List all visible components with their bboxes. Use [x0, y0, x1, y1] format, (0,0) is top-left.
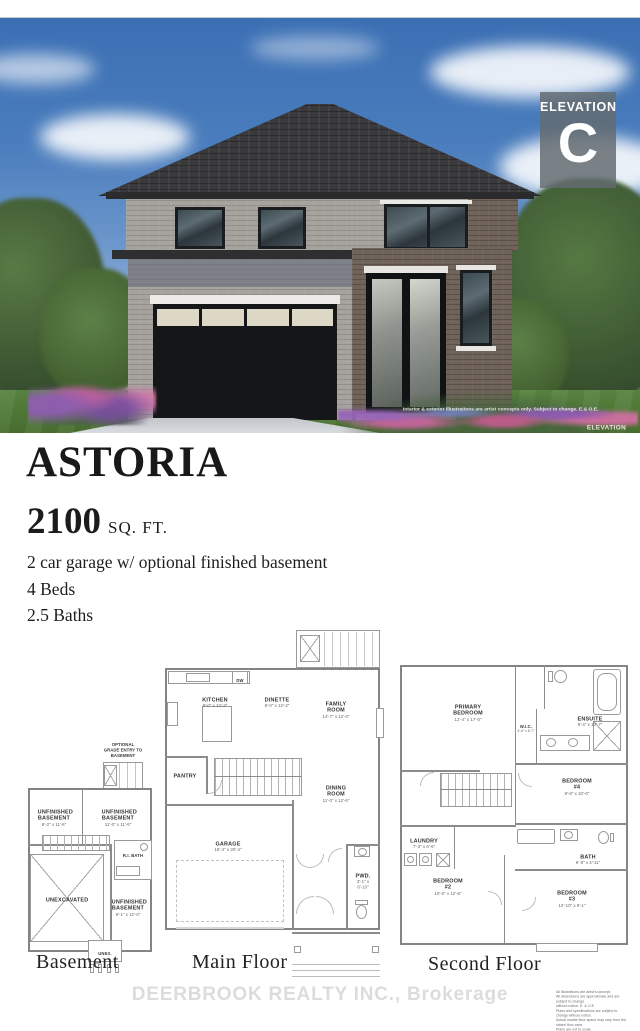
cloud: [0, 54, 95, 84]
dryer-drum: [422, 856, 429, 863]
washer-drum: [407, 856, 414, 863]
room-name: BATH: [580, 854, 596, 860]
cloud: [250, 36, 380, 60]
door-glass: [372, 279, 402, 407]
door-glass: [410, 279, 440, 407]
optional-entry-note: OPTIONAL GRADE ENTRY TO BASEMENT: [103, 742, 144, 758]
room-dim: 9'-8" x 10'-0": [558, 791, 596, 796]
room-name: GARAGE: [215, 841, 240, 847]
area-value: 2100: [27, 500, 101, 543]
stairs: [214, 758, 302, 796]
room-dim: 9'-2" x 11'-6": [38, 822, 71, 827]
deck-lines: [324, 632, 376, 666]
room-name: BEDROOM #2: [433, 878, 463, 891]
garage-door: [153, 304, 337, 420]
fine-print-line: Actual usable floor space may vary from …: [556, 1018, 628, 1027]
sink-icon: [546, 738, 556, 747]
second-floor-plan: PRIMARY BEDROOM 12'-4" x 17'-0" ENSUITE …: [396, 645, 636, 955]
roof-eave: [106, 192, 534, 199]
wall: [454, 825, 455, 869]
room-label-dinette: DINETTE 9'-0" x 12'-2": [260, 690, 294, 716]
room-dim: 14'-7" x 12'-0": [318, 714, 353, 719]
wall: [504, 855, 505, 945]
room-label-dw: DW: [229, 673, 252, 683]
sink-icon: [568, 738, 578, 747]
room-name: PANTRY: [174, 773, 197, 779]
room-dim: 11'-0" x 11'-6": [102, 822, 135, 827]
fireplace-bump: [376, 708, 384, 738]
photo-disclaimer: Interior & exterior illustrations are ar…: [402, 406, 598, 412]
sink-icon: [358, 848, 367, 856]
porch-post: [294, 946, 301, 953]
area-unit: SQ. FT.: [108, 518, 168, 538]
model-name: ASTORIA: [26, 438, 228, 487]
wall: [165, 804, 294, 806]
room-name: R.I. BATH: [123, 853, 143, 858]
room-label-unfinished-basement-3: UNFINISHED BASEMENT 8'-1" x 12'-0": [112, 892, 145, 924]
room-label-bedroom-4: BEDROOM #4 9'-8" x 10'-0": [558, 771, 596, 803]
room-name: ENSUITE: [577, 716, 602, 722]
room-name: BEDROOM #4: [562, 778, 592, 791]
main-floor-plan: DW KITCHEN 9'-0" x 12'-2" DINETTE 9'-0" …: [160, 628, 400, 990]
bay-window: [536, 943, 598, 952]
wall: [515, 869, 628, 871]
toilet-icon: [598, 831, 609, 844]
deck-window: [300, 635, 320, 662]
brokerage-watermark: DEERBROOK REALTY INC., Brokerage: [0, 984, 640, 1006]
room-dim: 9'-0" x 12'-2": [260, 704, 294, 709]
room-name: UNFINISHED BASEMENT: [38, 809, 73, 822]
room-label-unfinished-basement-2: UNFINISHED BASEMENT 11'-0" x 11'-6": [102, 802, 135, 834]
cloud: [430, 46, 630, 98]
room-label-unexcavated: UNEXCAVATED: [46, 890, 88, 903]
upper-wall-dark-column: [468, 199, 518, 251]
room-name: DW: [236, 678, 243, 683]
window-upper-right: [384, 204, 468, 250]
feature-list: 2 car garage w/ optional finished baseme…: [27, 549, 327, 629]
fine-print-line: All dimensions are approximate and are s…: [556, 995, 628, 1004]
room-name: BEDROOM #3: [557, 890, 587, 903]
room-label-wic: W.I.C. 4'-6" x 6'-7": [511, 719, 540, 739]
tub-icon: [517, 829, 555, 844]
badge-letter: C: [540, 114, 616, 173]
porch-step: [292, 964, 380, 965]
room-name: UNFINISHED BASEMENT: [102, 809, 137, 822]
room-name: UNEXCAVATED: [46, 897, 88, 903]
room-dim: 8'-1" x 12'-0": [112, 912, 145, 917]
sidelight-window: [460, 270, 492, 346]
feature-line: 2 car garage w/ optional finished baseme…: [27, 549, 327, 576]
room-dim: 18'-4" x 20'-4": [210, 848, 245, 853]
window-upper-middle: [258, 207, 306, 249]
feature-line: 4 Beds: [27, 576, 327, 603]
garage-window-divider: [199, 309, 202, 326]
room-name: LAUNDRY: [410, 838, 438, 844]
wall: [515, 823, 628, 825]
grade-entry-stairs: [119, 763, 142, 788]
porch-step: [292, 970, 380, 971]
room-name: UNFINISHED BASEMENT: [112, 899, 147, 912]
room-label-garage: GARAGE 18'-4" x 20'-4": [210, 834, 245, 860]
flyer-page: ELEVATION C Interior & exterior illustra…: [0, 0, 640, 1031]
stair-rail: [214, 776, 302, 777]
room-label-ensuite: ENSUITE 9'-4" x 10'-7": [572, 709, 607, 735]
house-photo: ELEVATION C Interior & exterior illustra…: [0, 18, 640, 433]
wall: [165, 756, 206, 758]
fine-print-line: Plans and specifications are subject to …: [556, 1009, 628, 1018]
wall: [292, 800, 294, 930]
room-dim: 12'-4" x 17'-0": [449, 717, 487, 722]
wall: [544, 665, 545, 709]
room-name: W.I.C.: [520, 724, 532, 729]
room-dim: 11'-0" x 12'-6": [318, 798, 353, 803]
wall: [515, 765, 516, 823]
room-label-dining-room: DINING ROOM 11'-0" x 12'-6": [318, 778, 353, 810]
room-label-bedroom-3: BEDROOM #3 12'-10" x 9'-1": [553, 883, 591, 915]
door-lintel: [364, 266, 448, 273]
room-dim: 4'-6" x 6'-7": [511, 729, 540, 733]
garage-door-windows: [157, 309, 333, 326]
garage-window-divider: [289, 309, 292, 326]
window-upper-left: [175, 207, 225, 249]
room-label-pantry: PANTRY: [171, 766, 200, 779]
wall: [515, 763, 628, 765]
room-dim: 9'-4" x 10'-7": [572, 723, 607, 728]
toilet-icon: [554, 670, 567, 683]
fine-print: All illustrations are artist's concept. …: [556, 990, 628, 1031]
room-name: FAMILY ROOM: [326, 701, 347, 714]
room-dim: 9'-8" x 4'-11": [570, 861, 605, 866]
room-name: DINING ROOM: [326, 785, 346, 798]
feature-line: 2.5 Baths: [27, 602, 327, 629]
garage-roof-fascia: [112, 250, 354, 259]
main-floor-caption: Main Floor: [192, 951, 288, 974]
kitchen-sink: [186, 673, 210, 682]
room-dim: 7'-3" x 6'-6": [406, 845, 441, 850]
room-label-kitchen: KITCHEN 9'-0" x 12'-2": [198, 690, 232, 716]
area-row: 2100 SQ. FT.: [27, 500, 168, 543]
photo-corner-label: ELEVATION: [587, 424, 626, 431]
wall: [515, 665, 516, 763]
room-name: KITCHEN: [202, 697, 228, 703]
stairs: [440, 773, 512, 807]
room-dim: 10'-0" x 12'-6": [429, 891, 467, 896]
wall: [400, 825, 516, 827]
elevation-badge: ELEVATION C: [540, 92, 616, 188]
garage-window-divider: [244, 309, 247, 326]
room-label-primary-bedroom: PRIMARY BEDROOM 12'-4" x 17'-0": [449, 697, 487, 729]
garage-wall-shadow: [128, 259, 352, 287]
flower-bed-left: [28, 370, 156, 425]
stair-rail: [440, 789, 512, 790]
sidelight-sill: [456, 346, 496, 351]
porch-post: [372, 946, 379, 953]
toilet-tank-icon: [610, 833, 614, 842]
porch-step: [292, 976, 380, 977]
room-name: PRIMARY BEDROOM: [453, 704, 483, 717]
room-label-unfinished-basement-1: UNFINISHED BASEMENT 9'-2" x 11'-6": [38, 802, 71, 834]
range-icon: [167, 702, 178, 726]
porch-edge: [292, 932, 380, 934]
sink-icon: [564, 831, 573, 839]
room-label-family-room: FAMILY ROOM 14'-7" x 12'-0": [318, 694, 353, 726]
room-name: DINETTE: [265, 697, 290, 703]
garage-lintel: [150, 295, 340, 304]
stairs: [42, 835, 110, 851]
room-label-pwd: PWD. 3'-1" x 6'-10": [351, 866, 374, 897]
cloud: [40, 114, 190, 160]
room-label-ri-bath: R.I. BATH: [121, 848, 145, 858]
tub-icon: [116, 866, 140, 876]
room-name: PWD.: [355, 873, 370, 879]
garage-door-track: [176, 860, 284, 922]
toilet-tank-icon: [548, 671, 553, 682]
grade-entry-window: [104, 765, 117, 786]
wall: [400, 770, 480, 772]
wall: [346, 844, 348, 930]
fine-print-line: Plans are not to scale.: [556, 1027, 628, 1031]
room-dim: 12'-10" x 9'-1": [553, 903, 591, 908]
room-dim: 9'-0" x 12'-2": [198, 704, 232, 709]
room-label-bedroom-2: BEDROOM #2 10'-0" x 12'-6": [429, 871, 467, 903]
basement-caption: Basement: [36, 951, 119, 974]
tub-basin: [597, 673, 617, 711]
garage-door-opening: [176, 927, 284, 929]
shower-icon: [436, 853, 450, 867]
second-floor-caption: Second Floor: [428, 953, 541, 976]
room-dim: 3'-1" x 6'-10": [351, 880, 374, 891]
window-mullion: [427, 207, 430, 247]
toilet-icon: [356, 905, 367, 919]
